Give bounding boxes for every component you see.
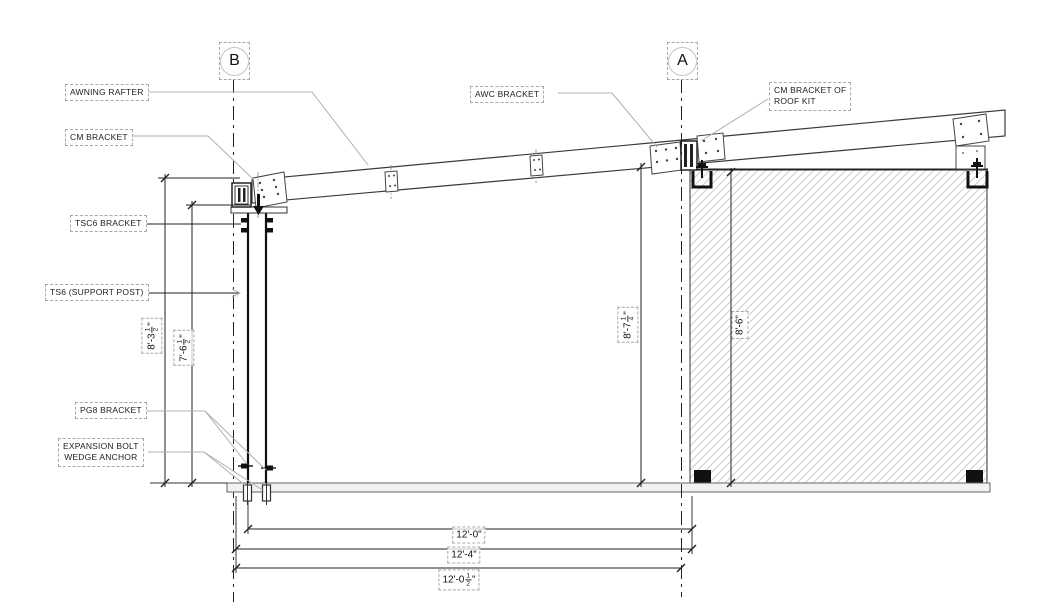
wall-base-block-right [966,470,983,483]
dim-label-left-inner: 7'-612" [173,330,194,366]
tsc6-bracket-bolts [241,218,273,233]
grid-bubble-a-circle: A [668,47,697,76]
callout-cm-bracket-roof-kit: CM BRACKET OF ROOF KIT [769,82,851,111]
leader-pg8-2 [205,411,266,470]
callout-awc-bracket: AWC BRACKET [470,86,544,103]
callout-awning-rafter: AWNING RAFTER [65,84,149,101]
grid-letter-a: A [677,52,688,70]
grid-bubble-b-circle: B [220,47,249,76]
dim-label-wall: 8'-6" [732,311,749,339]
dim-label-bottom-mid: 12'-4" [447,547,480,564]
dim-label-bottom-overall: 12'-012" [438,569,479,590]
anchor-rod [257,194,260,207]
grid-bubble-b: B [219,42,250,80]
leader-expansion-1 [148,452,246,486]
callout-ts6-support-post: TS6 (SUPPORT POST) [45,284,149,301]
callout-expansion-bolt: EXPANSION BOLT WEDGE ANCHOR [58,438,144,467]
pg8-bracket-bolts [238,464,276,471]
drawing-canvas: B A AWNING RAFTER CM BRACKET AWC BRACKET… [0,0,1061,602]
callout-pg8-bracket: PG8 BRACKET [75,402,147,419]
dimension-lines [158,163,735,573]
leader-cm-bracket [128,136,254,180]
leader-awc-bracket [558,93,657,147]
callout-cm-bracket: CM BRACKET [65,129,133,146]
leader-awning-rafter [146,92,368,165]
slab [150,483,990,492]
grid-bubble-a: A [667,42,698,80]
dim-label-left-outer: 8'-312" [141,318,162,354]
wall-base-block-left [694,470,711,483]
callout-tsc6-bracket: TSC6 BRACKET [70,215,147,232]
dim-label-middle: 8'-714" [617,307,638,343]
left-bracket-assembly [231,172,287,218]
grid-letter-b: B [229,52,240,70]
cm-bracket-at-a [681,141,697,170]
dim-label-bottom-post-to-wall: 12'-0" [452,527,485,544]
wall-section [683,170,988,484]
